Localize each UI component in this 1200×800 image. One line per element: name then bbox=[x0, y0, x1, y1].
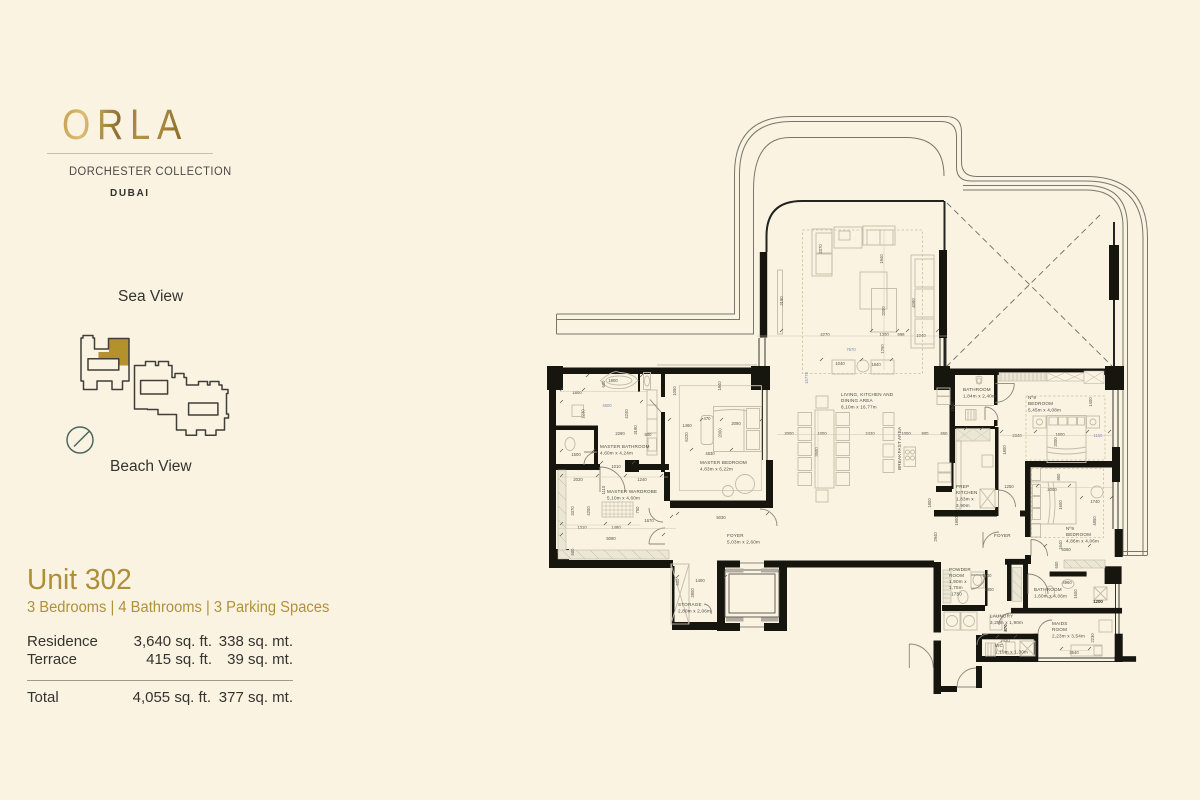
svg-text:KITCHEN: KITCHEN bbox=[956, 490, 978, 495]
svg-text:1640: 1640 bbox=[1058, 540, 1063, 550]
svg-text:3190: 3190 bbox=[779, 296, 784, 306]
svg-text:1230: 1230 bbox=[581, 409, 586, 419]
svg-text:1250: 1250 bbox=[1004, 484, 1014, 489]
svg-text:500: 500 bbox=[645, 432, 653, 437]
svg-text:3,25m x 1,90m: 3,25m x 1,90m bbox=[990, 620, 1023, 625]
svg-text:5030: 5030 bbox=[716, 515, 726, 520]
svg-text:2370: 2370 bbox=[818, 244, 823, 254]
svg-text:1460: 1460 bbox=[682, 423, 692, 428]
svg-text:1900: 1900 bbox=[954, 516, 959, 526]
svg-text:1050: 1050 bbox=[672, 386, 677, 396]
svg-text:1110: 1110 bbox=[601, 485, 606, 494]
svg-text:5,10m x 4,60m: 5,10m x 4,60m bbox=[607, 496, 640, 501]
svg-text:BEDROOM: BEDROOM bbox=[1066, 532, 1091, 537]
svg-text:4,60m x 4,24m: 4,60m x 4,24m bbox=[600, 451, 633, 456]
svg-text:2420: 2420 bbox=[865, 431, 875, 436]
svg-text:900: 900 bbox=[922, 431, 930, 436]
svg-text:5090: 5090 bbox=[606, 536, 616, 541]
svg-text:1500: 1500 bbox=[571, 452, 581, 457]
svg-text:470: 470 bbox=[704, 416, 712, 421]
svg-text:MASTER BATHROOM: MASTER BATHROOM bbox=[600, 444, 650, 449]
svg-text:1740: 1740 bbox=[1090, 499, 1100, 504]
svg-text:1,83m x: 1,83m x bbox=[956, 497, 974, 502]
svg-text:2000: 2000 bbox=[1053, 437, 1058, 447]
svg-text:1,19m x 1,30m: 1,19m x 1,30m bbox=[995, 650, 1028, 655]
svg-text:2230: 2230 bbox=[1090, 633, 1095, 643]
svg-text:4850: 4850 bbox=[1092, 516, 1097, 526]
svg-text:1000: 1000 bbox=[817, 431, 827, 436]
svg-text:2080: 2080 bbox=[881, 306, 886, 316]
svg-text:600: 600 bbox=[1054, 561, 1059, 569]
svg-text:1800: 1800 bbox=[572, 390, 582, 395]
svg-text:BEDROOM: BEDROOM bbox=[1028, 401, 1053, 406]
svg-text:4,83m x 6,22m: 4,83m x 6,22m bbox=[700, 467, 733, 472]
svg-text:2020: 2020 bbox=[573, 477, 583, 482]
svg-text:850: 850 bbox=[1056, 473, 1061, 481]
svg-text:1600: 1600 bbox=[1055, 432, 1065, 437]
svg-text:16779: 16779 bbox=[804, 372, 809, 384]
svg-text:650: 650 bbox=[941, 431, 949, 436]
svg-text:1800: 1800 bbox=[1002, 445, 1007, 455]
svg-text:2420: 2420 bbox=[1000, 638, 1010, 643]
svg-text:2940: 2940 bbox=[933, 532, 938, 542]
svg-text:4200: 4200 bbox=[586, 506, 591, 516]
svg-text:FOYER: FOYER bbox=[727, 533, 744, 538]
svg-text:ROOM: ROOM bbox=[1052, 627, 1067, 632]
svg-text:600: 600 bbox=[601, 380, 606, 388]
svg-text:4090: 4090 bbox=[911, 298, 916, 308]
svg-text:STORAGE: STORAGE bbox=[678, 602, 702, 607]
svg-text:1,90m x: 1,90m x bbox=[949, 579, 967, 584]
svg-text:1840: 1840 bbox=[871, 362, 881, 367]
svg-text:POWDER: POWDER bbox=[949, 567, 971, 572]
svg-text:1480: 1480 bbox=[611, 525, 621, 530]
svg-text:1300: 1300 bbox=[984, 587, 994, 592]
svg-text:870: 870 bbox=[1003, 624, 1008, 632]
svg-text:4600: 4600 bbox=[602, 403, 612, 408]
svg-text:600: 600 bbox=[675, 578, 680, 586]
svg-text:5,45m x 4,08m: 5,45m x 4,08m bbox=[1028, 408, 1061, 413]
svg-text:FOYER: FOYER bbox=[994, 533, 1011, 538]
svg-text:1600: 1600 bbox=[1073, 589, 1078, 599]
svg-text:Nº9: Nº9 bbox=[1028, 395, 1036, 400]
svg-text:1100: 1100 bbox=[982, 573, 992, 578]
svg-text:1600: 1600 bbox=[1058, 500, 1063, 510]
svg-text:2,23m x 3,54m: 2,23m x 3,54m bbox=[1052, 634, 1085, 639]
svg-text:1,75m: 1,75m bbox=[949, 585, 963, 590]
svg-text:1940: 1940 bbox=[879, 254, 884, 264]
svg-text:LIVING, KITCHEN AND: LIVING, KITCHEN AND bbox=[841, 392, 894, 397]
svg-text:3370: 3370 bbox=[570, 506, 575, 516]
svg-text:BATHROOM: BATHROOM bbox=[963, 387, 991, 392]
svg-text:1010: 1010 bbox=[611, 464, 621, 469]
svg-text:1800: 1800 bbox=[608, 378, 618, 383]
svg-text:LAUNDRY: LAUNDRY bbox=[990, 614, 1013, 619]
svg-text:Nº9: Nº9 bbox=[1066, 526, 1074, 531]
svg-text:1040: 1040 bbox=[916, 333, 926, 338]
svg-text:2000: 2000 bbox=[718, 428, 723, 438]
svg-text:ROOM: ROOM bbox=[949, 573, 964, 578]
svg-text:3190: 3190 bbox=[633, 425, 638, 435]
svg-text:3,90m: 3,90m bbox=[956, 503, 970, 508]
svg-text:1000: 1000 bbox=[901, 431, 911, 436]
svg-text:1040: 1040 bbox=[835, 361, 845, 366]
svg-text:7670: 7670 bbox=[846, 347, 856, 352]
svg-text:4960: 4960 bbox=[1062, 580, 1072, 585]
svg-text:4,86m x 4,06m: 4,86m x 4,06m bbox=[1066, 539, 1099, 544]
svg-text:1840: 1840 bbox=[717, 381, 722, 391]
svg-text:4240: 4240 bbox=[624, 409, 629, 419]
svg-text:1940: 1940 bbox=[950, 402, 955, 412]
svg-text:1200: 1200 bbox=[1093, 599, 1103, 604]
svg-text:WC: WC bbox=[995, 643, 1004, 648]
svg-text:2,80m x 2,06m: 2,80m x 2,06m bbox=[678, 609, 711, 614]
svg-text:MASTER WARDROBE: MASTER WARDROBE bbox=[607, 489, 657, 494]
svg-text:600: 600 bbox=[570, 548, 575, 556]
svg-text:1,84m x 2,40m: 1,84m x 2,40m bbox=[963, 394, 996, 399]
svg-text:1800: 1800 bbox=[927, 498, 932, 508]
svg-text:1400: 1400 bbox=[695, 578, 705, 583]
svg-text:6220: 6220 bbox=[684, 432, 689, 442]
svg-text:1240: 1240 bbox=[637, 477, 647, 482]
svg-text:4830: 4830 bbox=[705, 451, 715, 456]
svg-text:MASTER BEDROOM: MASTER BEDROOM bbox=[700, 460, 747, 465]
svg-text:8,10m x 16,77m: 8,10m x 16,77m bbox=[841, 405, 877, 410]
svg-text:2290: 2290 bbox=[615, 431, 625, 436]
svg-text:2800: 2800 bbox=[690, 588, 695, 598]
svg-text:PREP: PREP bbox=[956, 484, 969, 489]
svg-text:750: 750 bbox=[635, 506, 640, 514]
svg-text:MAIDS: MAIDS bbox=[1052, 621, 1068, 626]
svg-text:1310: 1310 bbox=[577, 525, 587, 530]
svg-text:1,60m x 4,06m: 1,60m x 4,06m bbox=[1034, 594, 1067, 599]
svg-text:2000: 2000 bbox=[784, 431, 794, 436]
svg-text:BATHROOM: BATHROOM bbox=[1034, 587, 1062, 592]
svg-text:DINING AREA: DINING AREA bbox=[841, 398, 874, 403]
svg-text:1670: 1670 bbox=[644, 518, 654, 523]
svg-text:1750: 1750 bbox=[951, 592, 962, 597]
svg-text:1400: 1400 bbox=[1088, 397, 1093, 407]
svg-text:2090: 2090 bbox=[731, 421, 741, 426]
svg-text:5,03m x 2,60m: 5,03m x 2,60m bbox=[727, 540, 760, 545]
